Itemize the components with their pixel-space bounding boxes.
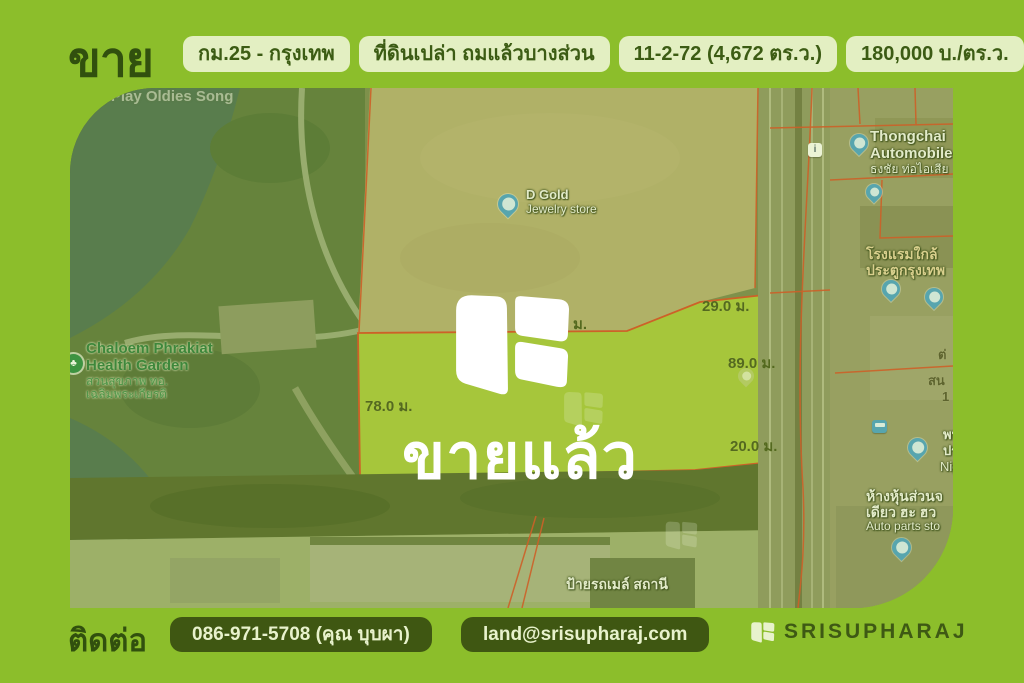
badge-location: กม.25 - กรุงเทพ bbox=[183, 36, 350, 72]
brand-footer-logo-icon bbox=[750, 621, 775, 643]
brand: SRISUPHARAJ bbox=[750, 620, 968, 644]
badge-land-type: ที่ดินเปล่า ถมแล้วบางส่วน bbox=[359, 36, 610, 72]
header-badges: กม.25 - กรุงเทพ ที่ดินเปล่า ถมแล้วบางส่ว… bbox=[183, 36, 1024, 72]
badge-price: 180,000 บ./ตร.ว. bbox=[846, 36, 1024, 72]
email-pill: land@srisupharaj.com bbox=[461, 617, 709, 652]
satellite-map: D Gold Jewelry store ♣ Chaloem Phrakiat … bbox=[70, 88, 953, 608]
contact-label: ติดต่อ bbox=[68, 615, 147, 665]
sold-overlay: ขายแล้ว bbox=[70, 88, 953, 608]
brand-logo-icon bbox=[450, 290, 572, 396]
sold-stamp: ขายแล้ว bbox=[370, 406, 670, 506]
badge-area: 11-2-72 (4,672 ตร.ว.) bbox=[619, 36, 837, 72]
phone-pill: 086-971-5708 (คุณ บุบผา) bbox=[170, 617, 432, 652]
page-title: ขาย bbox=[68, 22, 153, 98]
brand-name: SRISUPHARAJ bbox=[784, 620, 968, 644]
